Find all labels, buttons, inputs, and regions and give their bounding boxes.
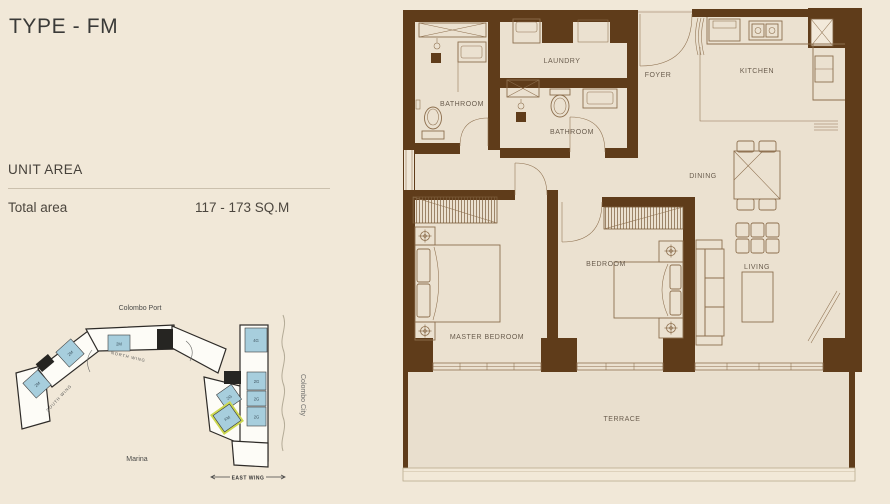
room-label-master-bedroom: MASTER BEDROOM [450, 334, 524, 341]
room-label-foyer: FOYER [645, 72, 672, 79]
shower-drain [516, 112, 526, 122]
south-wing-label: SOUTH WING [45, 383, 73, 412]
room-label-living: LIVING [744, 264, 770, 271]
east-wing-label: EAST WING [232, 476, 265, 482]
room-label-bedroom: BEDROOM [586, 261, 626, 268]
terrace-balustrade [403, 468, 855, 481]
unit-cell: 2G [247, 391, 266, 406]
room-label-kitchen: KITCHEN [740, 68, 774, 75]
svg-text:2G: 2G [254, 379, 260, 384]
wardrobe [413, 197, 497, 223]
unit-cell: 2G [247, 372, 266, 390]
floor-plan: BATHROOM LAUNDRY BATHROOM FOYER KITCHEN … [400, 0, 890, 504]
service-shaft [811, 19, 833, 46]
room-label-bathroom-2: BATHROOM [550, 129, 594, 136]
room-label-bathroom-1: BATHROOM [440, 101, 484, 108]
room-label-laundry: LAUNDRY [544, 58, 581, 65]
unit-area-heading: UNIT AREA [8, 162, 83, 177]
room-label-terrace: TERRACE [604, 416, 641, 423]
hall-window [404, 150, 414, 190]
floorplan-page: TYPE - FM UNIT AREA Total area 117 - 173… [0, 0, 890, 504]
total-area-value: 117 - 173 SQ.M [195, 200, 289, 215]
marina-label: Marina [126, 456, 148, 463]
east-wing-caption: EAST WING [211, 475, 285, 482]
room-label-dining: DINING [689, 173, 717, 180]
svg-text:2G: 2G [254, 415, 260, 420]
total-area-label: Total area [8, 200, 67, 215]
core-block [224, 371, 241, 384]
wardrobe [604, 207, 683, 229]
colombo-city-label: Colombo City [299, 374, 306, 417]
page-title: TYPE - FM [9, 15, 118, 39]
unit-cell: 4G [245, 328, 267, 352]
unit-cell: 2G [247, 407, 266, 426]
colombo-port-label: Colombo Port [119, 305, 162, 312]
unit-cell: 2M [108, 335, 130, 351]
key-plan: Colombo Port Marina Colombo City 2M [0, 293, 330, 504]
coastline [282, 315, 285, 451]
divider-line [8, 188, 330, 189]
svg-text:2M: 2M [116, 342, 122, 347]
core-block [157, 329, 173, 349]
north-wing-label: NORTH WING [111, 350, 147, 363]
svg-text:2G: 2G [254, 397, 260, 402]
svg-text:4G: 4G [253, 338, 259, 343]
shower-drain [431, 53, 441, 63]
